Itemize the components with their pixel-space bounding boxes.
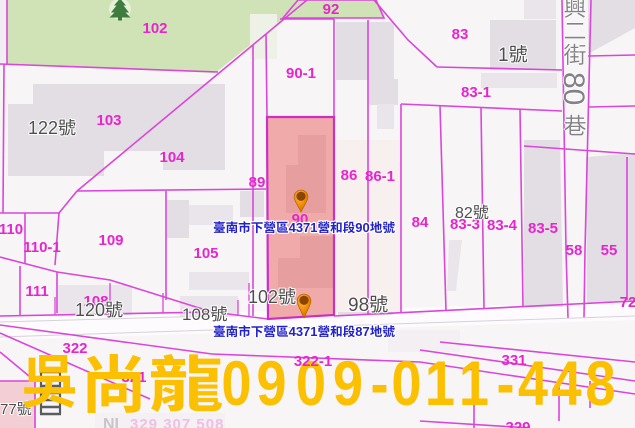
svg-text:90: 90 — [355, 220, 369, 235]
svg-text:9: 9 — [333, 349, 363, 419]
svg-text:-: - — [496, 349, 514, 419]
svg-text:102: 102 — [248, 287, 278, 307]
svg-text:87: 87 — [355, 324, 369, 339]
svg-text:4: 4 — [551, 349, 581, 419]
svg-text:102: 102 — [142, 20, 167, 37]
svg-text:120: 120 — [75, 300, 105, 320]
svg-text:4: 4 — [518, 349, 548, 419]
svg-text:108: 108 — [182, 305, 210, 324]
svg-text:55: 55 — [601, 242, 618, 259]
svg-text:111: 111 — [25, 283, 48, 300]
svg-text:103: 103 — [96, 112, 121, 129]
svg-text:72: 72 — [620, 294, 635, 311]
svg-text:83: 83 — [452, 26, 469, 43]
svg-text:90-1: 90-1 — [286, 65, 316, 82]
svg-text:9: 9 — [256, 349, 286, 419]
svg-text:98: 98 — [348, 295, 369, 316]
svg-text:1: 1 — [425, 349, 455, 419]
svg-text:83-1: 83-1 — [461, 84, 491, 101]
svg-text:86-1: 86-1 — [365, 168, 395, 185]
svg-text:110: 110 — [0, 221, 23, 238]
svg-text:322: 322 — [62, 340, 87, 357]
svg-text:8: 8 — [585, 349, 615, 419]
svg-text:322-1: 322-1 — [294, 353, 332, 370]
svg-text:58: 58 — [566, 242, 583, 259]
svg-text:122: 122 — [28, 118, 58, 138]
svg-text:89: 89 — [249, 174, 266, 191]
svg-text:329 307 508: 329 307 508 — [130, 416, 224, 428]
svg-text:0: 0 — [391, 349, 421, 419]
svg-text:-: - — [370, 349, 388, 419]
svg-text:105: 105 — [193, 245, 218, 262]
svg-text:NI: NI — [103, 416, 119, 428]
svg-text:1: 1 — [459, 349, 489, 419]
svg-text:82: 82 — [455, 205, 473, 222]
svg-text:110-1: 110-1 — [23, 239, 61, 256]
svg-text:84: 84 — [412, 214, 429, 231]
svg-text:83-4: 83-4 — [487, 217, 518, 234]
svg-text:104: 104 — [159, 149, 185, 166]
svg-text:83-5: 83-5 — [528, 220, 558, 237]
svg-text:77: 77 — [0, 401, 17, 418]
svg-text:92: 92 — [323, 1, 340, 18]
svg-text:109: 109 — [98, 232, 123, 249]
svg-text:80: 80 — [557, 72, 590, 105]
svg-text:4371: 4371 — [289, 324, 318, 339]
svg-text:86: 86 — [341, 167, 358, 184]
svg-text:4371: 4371 — [289, 220, 318, 235]
svg-text:329: 329 — [505, 419, 530, 428]
svg-text:0: 0 — [221, 349, 251, 419]
svg-text:1: 1 — [498, 45, 509, 66]
